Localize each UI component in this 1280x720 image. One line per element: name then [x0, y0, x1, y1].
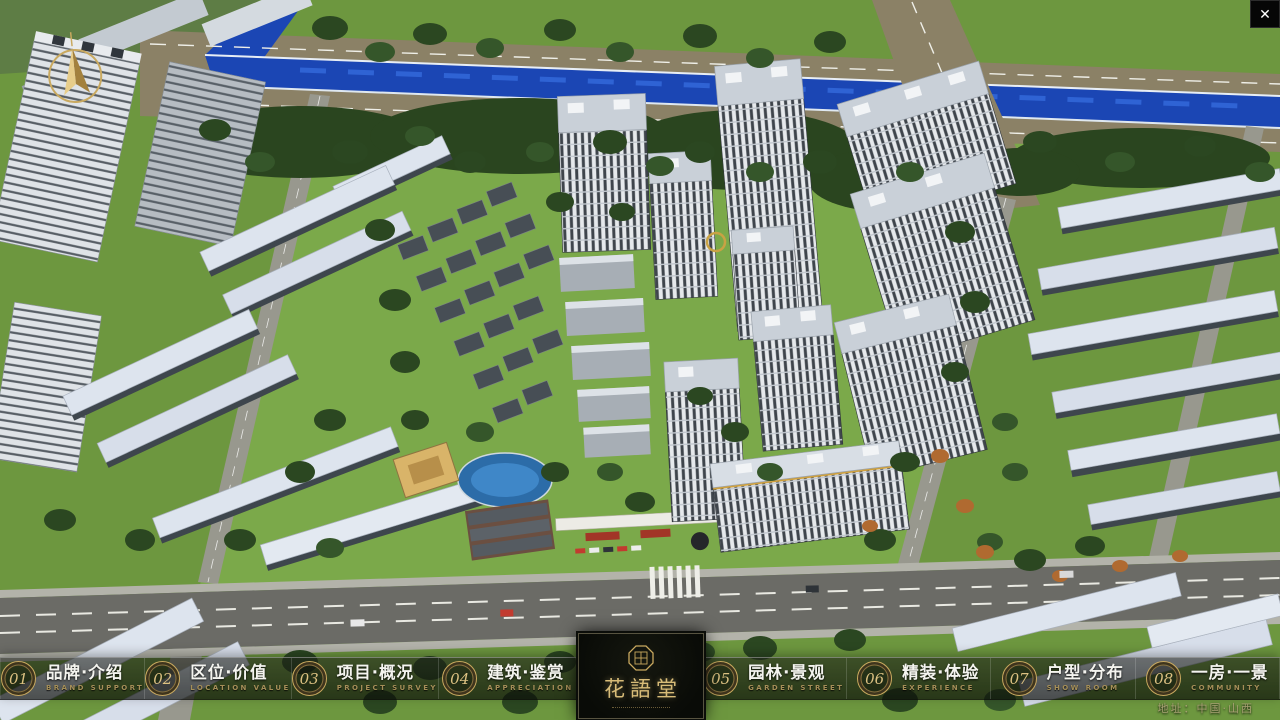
menu-number-badge: 02 [145, 661, 180, 696]
menu-item-01[interactable]: 01 品牌·介绍BRAND SUPPORT [0, 658, 145, 699]
menu-title: 区位·价值 [190, 665, 290, 682]
menu-number: 08 [1154, 670, 1173, 688]
menu-number-badge: 04 [442, 661, 477, 696]
menu-group-left: 01 品牌·介绍BRAND SUPPORT 02 区位·价值LOCATION V… [0, 658, 578, 699]
menu-title: 园林·景观 [748, 665, 844, 682]
menu-number-badge: 03 [292, 661, 327, 696]
logo-panel[interactable]: 花語堂 [578, 633, 704, 719]
menu-item-04[interactable]: 04 建筑·鉴赏APPRECIATION [439, 658, 578, 699]
menu-item-07[interactable]: 07 户型·分布SHOW ROOM [991, 658, 1136, 699]
menu-number: 05 [711, 670, 730, 688]
menu-item-08[interactable]: 08 一房·一景COMMUNITY [1136, 658, 1280, 699]
menu-subtitle: LOCATION VALUE [190, 685, 290, 692]
menu-item-05[interactable]: 05 园林·景观GARDEN STREET [702, 658, 847, 699]
menu-number-badge: 05 [703, 661, 738, 696]
close-button[interactable]: ✕ [1250, 0, 1280, 28]
logo-divider [612, 707, 670, 708]
menu-number-badge: 07 [1002, 661, 1037, 696]
menu-number: 02 [153, 670, 172, 688]
close-icon: ✕ [1259, 7, 1271, 21]
logo-title: 花語堂 [604, 673, 682, 703]
menu-subtitle: EXPERIENCE [902, 685, 979, 692]
seal-emblem-icon [628, 645, 654, 671]
menu-item-06[interactable]: 06 精装·体验EXPERIENCE [847, 658, 992, 699]
menu-title: 品牌·介绍 [46, 665, 144, 682]
menu-number: 03 [300, 670, 319, 688]
menu-subtitle: PROJECT SURVEY [337, 685, 438, 692]
menu-subtitle: BRAND SUPPORT [46, 685, 144, 692]
menu-title: 一房·一景 [1191, 665, 1268, 682]
menu-number-badge: 01 [1, 661, 36, 696]
menu-item-03[interactable]: 03 项目·概况PROJECT SURVEY [292, 658, 439, 699]
menu-title: 项目·概况 [337, 665, 438, 682]
menu-subtitle: COMMUNITY [1191, 685, 1268, 692]
menu-number: 07 [1010, 670, 1029, 688]
menu-number: 04 [450, 670, 469, 688]
menu-subtitle: GARDEN STREET [748, 685, 844, 692]
menu-number-badge: 06 [857, 661, 892, 696]
menu-group-right: 05 园林·景观GARDEN STREET 06 精装·体验EXPERIENCE… [702, 658, 1280, 699]
menu-title: 户型·分布 [1047, 665, 1124, 682]
app-window: ✕ 01 品牌·介绍BRAND SUPPORT 02 区位·价值LOCATION… [0, 0, 1280, 720]
menu-item-02[interactable]: 02 区位·价值LOCATION VALUE [145, 658, 291, 699]
menu-title: 建筑·鉴赏 [487, 665, 573, 682]
aerial-render [0, 0, 1280, 720]
menu-subtitle: SHOW ROOM [1047, 685, 1124, 692]
menu-number: 06 [865, 670, 884, 688]
menu-subtitle: APPRECIATION [487, 685, 573, 692]
menu-number-badge: 08 [1146, 661, 1181, 696]
compass-icon[interactable] [40, 26, 110, 114]
pond [458, 453, 552, 507]
menu-title: 精装·体验 [902, 665, 979, 682]
address-text: 地址：中国·山西 [1158, 700, 1255, 716]
menu-number: 01 [9, 670, 28, 688]
